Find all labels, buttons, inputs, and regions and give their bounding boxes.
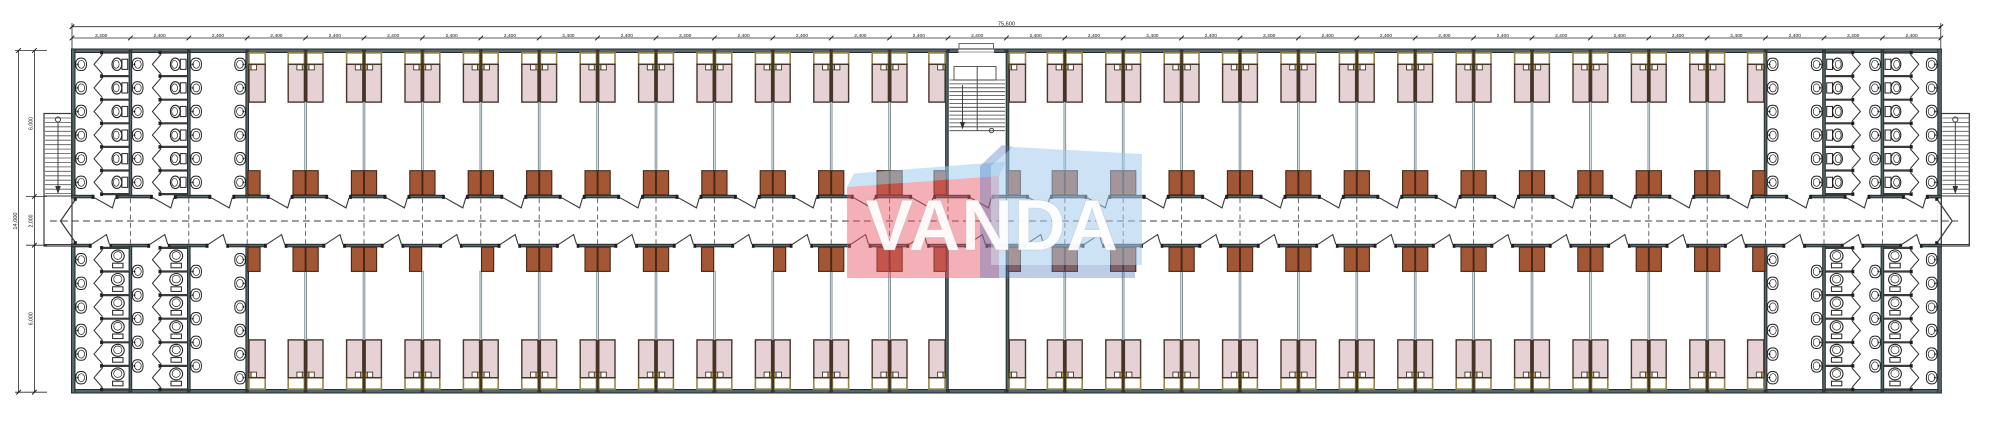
svg-text:VANDA: VANDA — [865, 186, 1118, 266]
svg-text:2,400: 2,400 — [212, 33, 225, 39]
svg-text:2,400: 2,400 — [621, 33, 634, 39]
svg-text:2,400: 2,400 — [1380, 33, 1393, 39]
svg-text:2,000: 2,000 — [29, 214, 35, 227]
svg-text:2,400: 2,400 — [387, 33, 400, 39]
svg-text:2,400: 2,400 — [504, 33, 517, 39]
svg-text:2,400: 2,400 — [1789, 33, 1802, 39]
svg-text:6,000: 6,000 — [29, 312, 35, 325]
svg-text:2,400: 2,400 — [1555, 33, 1568, 39]
svg-text:2,400: 2,400 — [1905, 33, 1918, 39]
svg-text:2,400: 2,400 — [562, 33, 575, 39]
svg-text:2,400: 2,400 — [1146, 33, 1159, 39]
svg-text:2,400: 2,400 — [1613, 33, 1626, 39]
svg-text:2,400: 2,400 — [1205, 33, 1218, 39]
svg-text:2,400: 2,400 — [1088, 33, 1101, 39]
svg-text:2,400: 2,400 — [1497, 33, 1510, 39]
svg-text:2,400: 2,400 — [1263, 33, 1276, 39]
svg-text:2,400: 2,400 — [329, 33, 342, 39]
svg-text:2,400: 2,400 — [153, 33, 166, 39]
svg-text:2,400: 2,400 — [854, 33, 867, 39]
svg-text:2,400: 2,400 — [971, 33, 984, 39]
svg-text:2,400: 2,400 — [737, 33, 750, 39]
svg-text:2,400: 2,400 — [796, 33, 809, 39]
svg-text:2,400: 2,400 — [1321, 33, 1334, 39]
svg-text:2,400: 2,400 — [1730, 33, 1743, 39]
svg-text:2,400: 2,400 — [1847, 33, 1860, 39]
svg-text:2,400: 2,400 — [1672, 33, 1685, 39]
svg-text:2,400: 2,400 — [95, 33, 108, 39]
svg-text:6,000: 6,000 — [29, 117, 35, 130]
svg-text:14,000: 14,000 — [13, 212, 19, 229]
svg-text:75,600: 75,600 — [998, 21, 1015, 27]
svg-text:2,400: 2,400 — [445, 33, 458, 39]
svg-text:2,400: 2,400 — [1438, 33, 1451, 39]
svg-text:2,400: 2,400 — [679, 33, 692, 39]
svg-text:2,400: 2,400 — [1029, 33, 1042, 39]
svg-text:2,400: 2,400 — [270, 33, 283, 39]
svg-text:2,400: 2,400 — [913, 33, 926, 39]
